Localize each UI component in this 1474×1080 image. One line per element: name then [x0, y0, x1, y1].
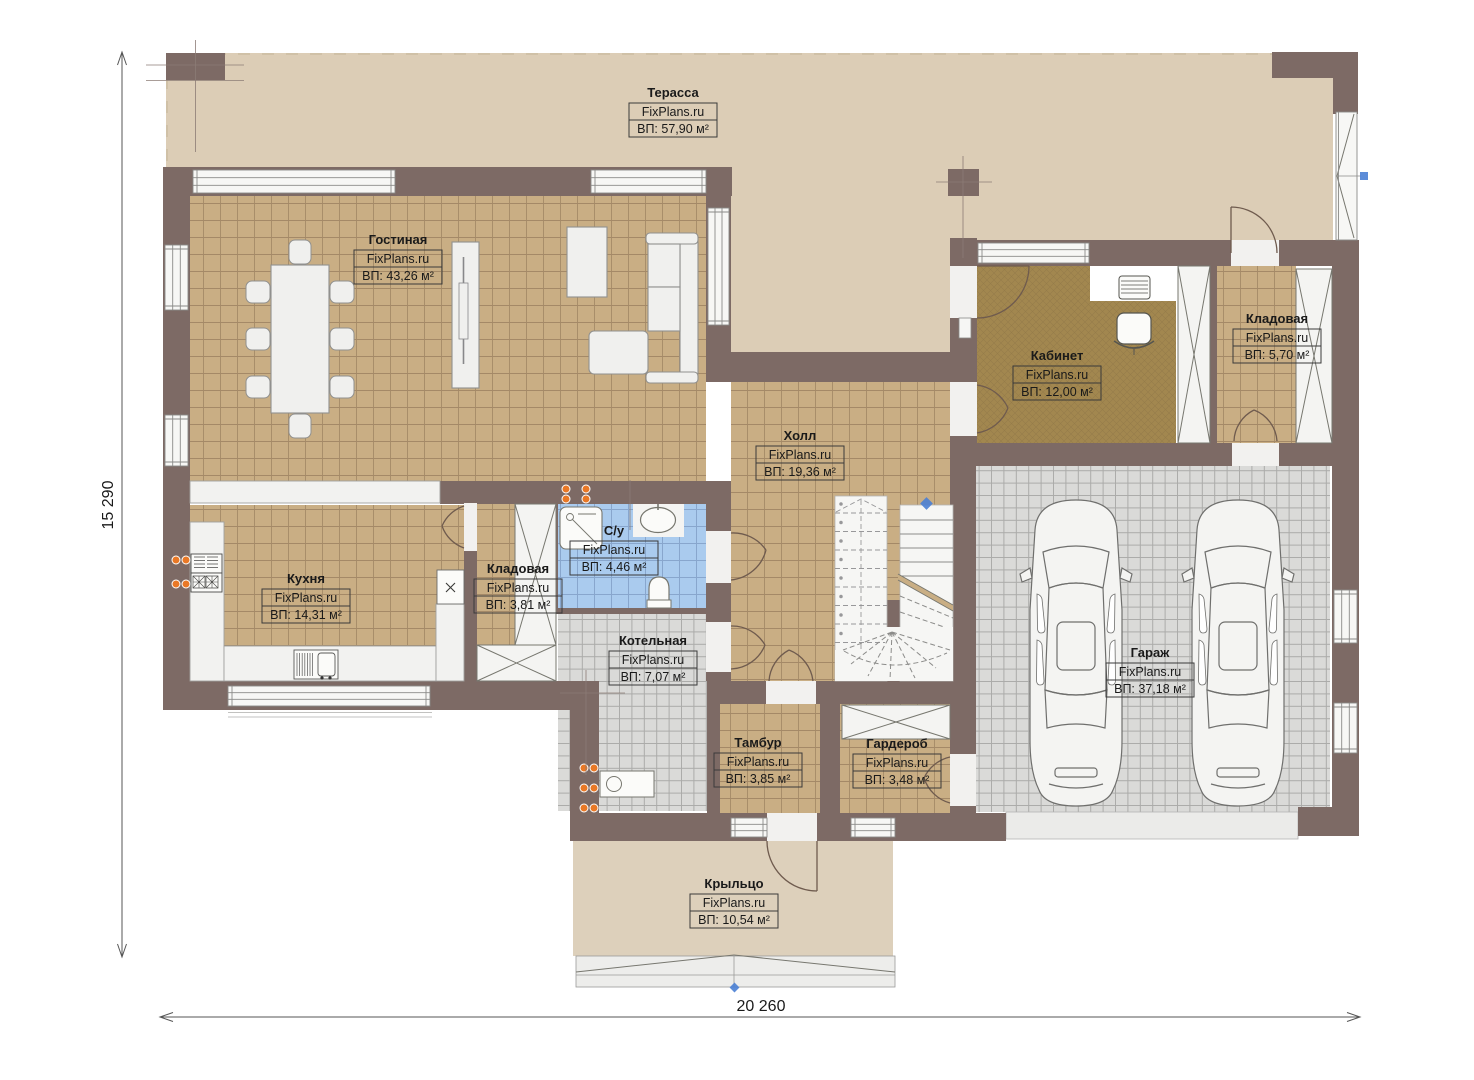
svg-text:20 260: 20 260: [737, 998, 786, 1015]
svg-text:Котельная: Котельная: [619, 633, 687, 648]
svg-text:ВП: 7,07 м²: ВП: 7,07 м²: [621, 670, 686, 684]
svg-text:ВП: 43,26 м²: ВП: 43,26 м²: [362, 269, 434, 283]
svg-text:FixPlans.ru: FixPlans.ru: [622, 653, 685, 667]
svg-text:Тамбур: Тамбур: [734, 735, 781, 750]
svg-text:FixPlans.ru: FixPlans.ru: [866, 756, 929, 770]
svg-text:ВП: 57,90 м²: ВП: 57,90 м²: [637, 122, 709, 136]
svg-text:С/у: С/у: [604, 523, 625, 538]
svg-text:FixPlans.ru: FixPlans.ru: [727, 755, 790, 769]
svg-text:FixPlans.ru: FixPlans.ru: [769, 448, 832, 462]
svg-text:15 290: 15 290: [100, 480, 117, 529]
svg-text:FixPlans.ru: FixPlans.ru: [583, 543, 646, 557]
svg-text:Гостиная: Гостиная: [369, 232, 428, 247]
svg-text:ВП: 3,48 м²: ВП: 3,48 м²: [865, 773, 930, 787]
svg-text:Кладовая: Кладовая: [1246, 311, 1308, 326]
svg-text:FixPlans.ru: FixPlans.ru: [703, 896, 766, 910]
svg-text:ВП: 4,46 м²: ВП: 4,46 м²: [582, 560, 647, 574]
svg-text:Кухня: Кухня: [287, 571, 325, 586]
svg-text:Крыльцо: Крыльцо: [704, 876, 763, 891]
svg-text:Кабинет: Кабинет: [1031, 348, 1084, 363]
svg-text:FixPlans.ru: FixPlans.ru: [642, 105, 705, 119]
svg-text:FixPlans.ru: FixPlans.ru: [487, 581, 550, 595]
svg-text:ВП: 37,18 м²: ВП: 37,18 м²: [1114, 682, 1186, 696]
svg-text:Гардероб: Гардероб: [866, 736, 927, 751]
svg-text:ВП: 3,85 м²: ВП: 3,85 м²: [726, 772, 791, 786]
svg-text:ВП: 14,31 м²: ВП: 14,31 м²: [270, 608, 342, 622]
svg-text:Холл: Холл: [784, 428, 817, 443]
svg-text:ВП: 3,81 м²: ВП: 3,81 м²: [486, 598, 551, 612]
svg-text:FixPlans.ru: FixPlans.ru: [1119, 665, 1182, 679]
svg-text:ВП: 12,00 м²: ВП: 12,00 м²: [1021, 385, 1093, 399]
svg-text:FixPlans.ru: FixPlans.ru: [275, 591, 338, 605]
svg-text:ВП: 19,36 м²: ВП: 19,36 м²: [764, 465, 836, 479]
svg-text:Гараж: Гараж: [1131, 645, 1171, 660]
svg-text:FixPlans.ru: FixPlans.ru: [1246, 331, 1309, 345]
svg-text:FixPlans.ru: FixPlans.ru: [1026, 368, 1089, 382]
svg-text:Терасса: Терасса: [647, 85, 699, 100]
svg-text:FixPlans.ru: FixPlans.ru: [367, 252, 430, 266]
svg-text:Кладовая: Кладовая: [487, 561, 549, 576]
svg-text:ВП: 5,70 м²: ВП: 5,70 м²: [1245, 348, 1310, 362]
svg-text:ВП: 10,54 м²: ВП: 10,54 м²: [698, 913, 770, 927]
